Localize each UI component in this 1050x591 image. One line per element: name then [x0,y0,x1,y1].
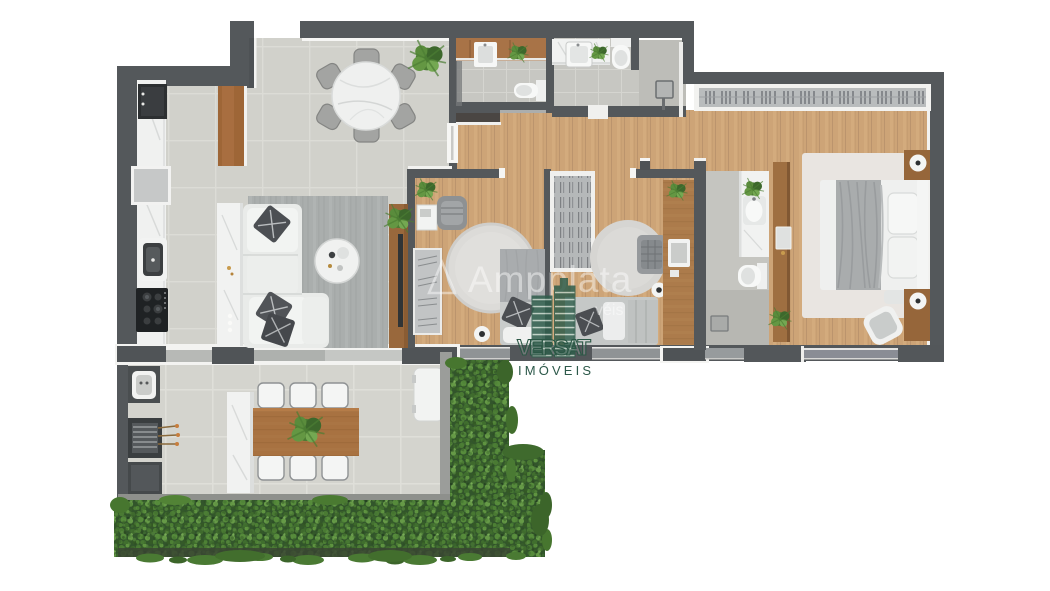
svg-text:IMÓVEIS: IMÓVEIS [518,363,595,378]
svg-text:véis: véis [595,302,623,319]
svg-text:VERSAT: VERSAT [517,335,592,360]
svg-text:Ampplata: Ampplata [468,259,632,300]
